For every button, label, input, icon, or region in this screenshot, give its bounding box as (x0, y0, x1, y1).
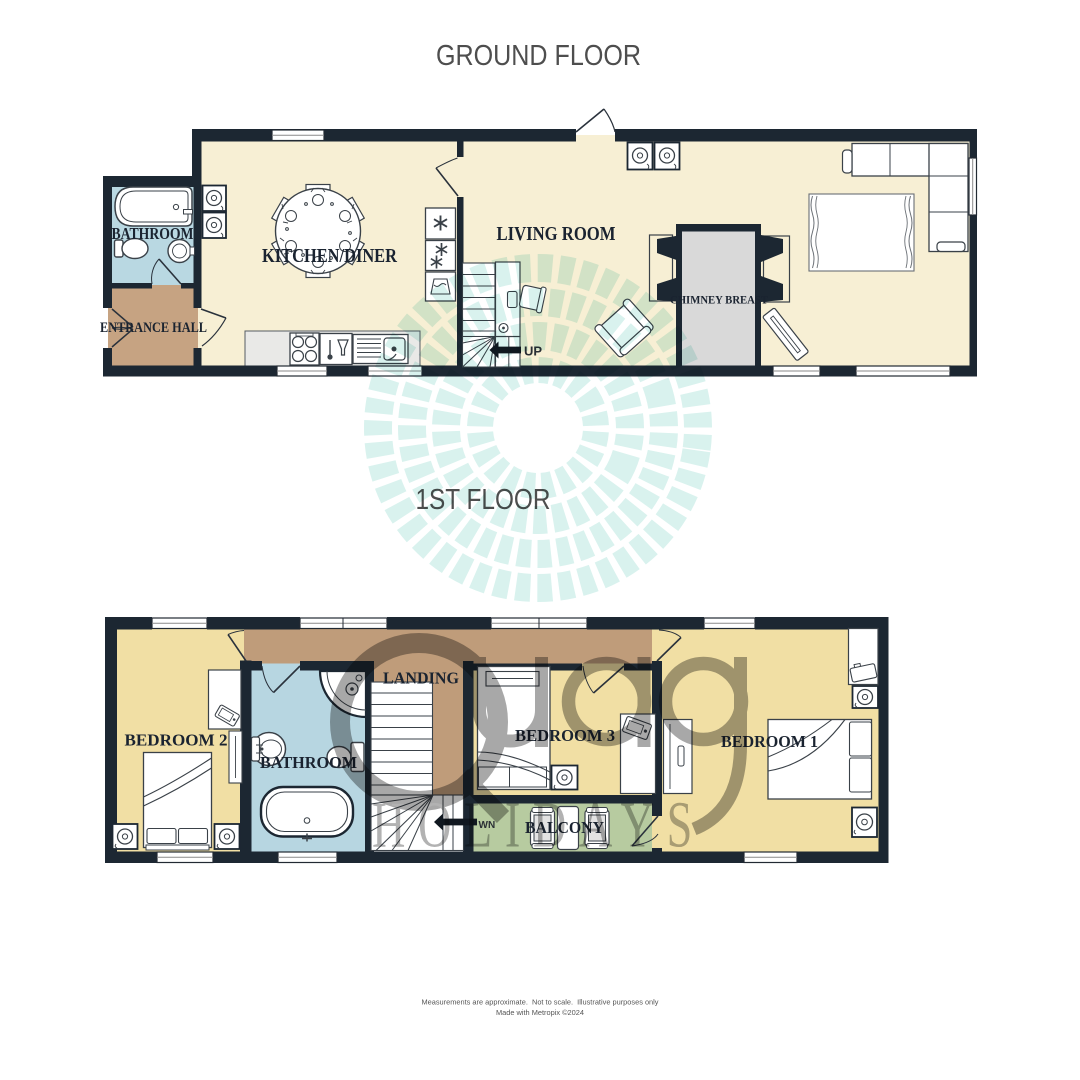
svg-text:GROUND FLOOR: GROUND FLOOR (436, 40, 641, 72)
svg-text:Made with Metropix ©2024: Made with Metropix ©2024 (496, 1008, 584, 1017)
svg-text:LIVING ROOM: LIVING ROOM (497, 224, 616, 245)
svg-text:ENTRANCE HALL: ENTRANCE HALL (100, 320, 207, 336)
svg-text:CHIMNEY BREAST: CHIMNEY BREAST (670, 295, 768, 307)
svg-text:LANDING: LANDING (383, 669, 459, 688)
svg-text:KITCHEN/DINER: KITCHEN/DINER (262, 246, 398, 267)
svg-text:BATHROOM: BATHROOM (112, 224, 194, 243)
svg-text:Measurements are approximate.: Measurements are approximate. Not to sca… (421, 998, 658, 1007)
svg-text:BEDROOM 2: BEDROOM 2 (125, 731, 228, 750)
svg-text:HOLIDAYS: HOLIDAYS (372, 789, 705, 862)
